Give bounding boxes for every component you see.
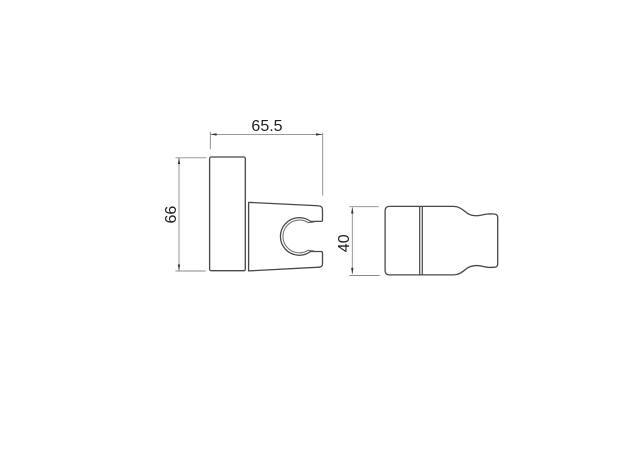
svg-text:65.5: 65.5 [251,118,282,135]
svg-text:66: 66 [163,206,180,224]
svg-text:40: 40 [336,234,353,252]
